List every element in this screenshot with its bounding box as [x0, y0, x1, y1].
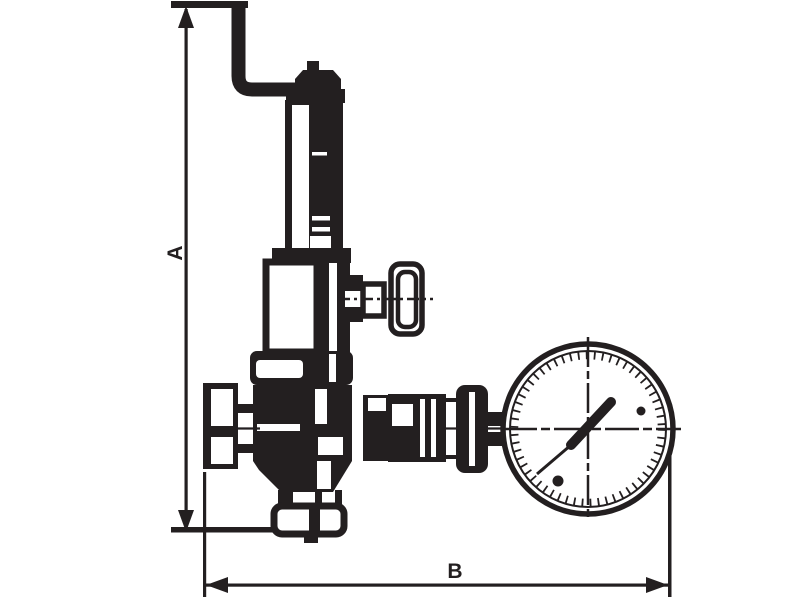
valve-body [253, 385, 352, 492]
outlet-flange-divider [309, 507, 320, 533]
drawing-canvas: A B [0, 0, 800, 598]
cap-body [295, 70, 341, 91]
inlet-flange-window-top [211, 389, 233, 426]
side-adjuster [338, 264, 433, 334]
top-flange-slot [329, 354, 336, 382]
dimension-b-arrow-right [646, 577, 668, 593]
inlet-connection [203, 383, 260, 469]
spring-bonnet-tube [272, 100, 351, 263]
pressure-gauge [503, 337, 681, 521]
spindle-tick-3 [312, 227, 330, 232]
inlet-flange-window-bottom [211, 437, 233, 464]
gauge-fittings [363, 385, 506, 473]
gauge-counterweight-dot [553, 476, 564, 487]
inlet-neck-top [237, 404, 259, 413]
spindle-window [310, 236, 331, 249]
dimension-a-arrow-top [178, 6, 194, 28]
gauge-union-face [392, 404, 413, 426]
bonnet-tube-slot [292, 105, 309, 249]
outlet-tip [304, 532, 318, 543]
inlet-neck-bottom [237, 444, 259, 453]
dimension-a-datum-bottom [171, 527, 283, 533]
dimension-b-extension-left [203, 472, 206, 597]
dimension-a-label: A [164, 245, 187, 260]
housing-box [266, 262, 317, 352]
top-flange-face [256, 360, 303, 378]
body-cavity-window [318, 437, 343, 455]
gauge-dial-dot [637, 407, 646, 416]
housing-rib-left [317, 261, 329, 365]
body-stem-channel-upper [315, 389, 327, 424]
outlet-connection [274, 490, 344, 543]
dimension-b-label: B [447, 560, 462, 583]
gauge-cap-facet [469, 392, 475, 466]
body-stem-channel-lower [317, 461, 331, 489]
lever-bent-pipe [239, 4, 300, 90]
bonnet-cap [286, 61, 345, 103]
valve-technical-drawing: A B [0, 0, 800, 598]
body-top-flange [250, 351, 353, 385]
dimension-b-line [206, 584, 669, 587]
body-face-band [257, 424, 300, 431]
dimension-a-line [185, 9, 188, 529]
gauge-hex-facet-2 [431, 399, 436, 457]
dimension-b-extension-right [668, 450, 672, 597]
spindle-tick-1 [312, 152, 327, 156]
gauge-adapter-face [368, 398, 386, 411]
spindle-tick-2 [312, 216, 330, 221]
dimension-b-arrow-left [206, 577, 228, 593]
gauge-hex-facet-1 [420, 399, 425, 457]
lever-pipe [171, 1, 299, 90]
spring-housing [266, 256, 350, 365]
